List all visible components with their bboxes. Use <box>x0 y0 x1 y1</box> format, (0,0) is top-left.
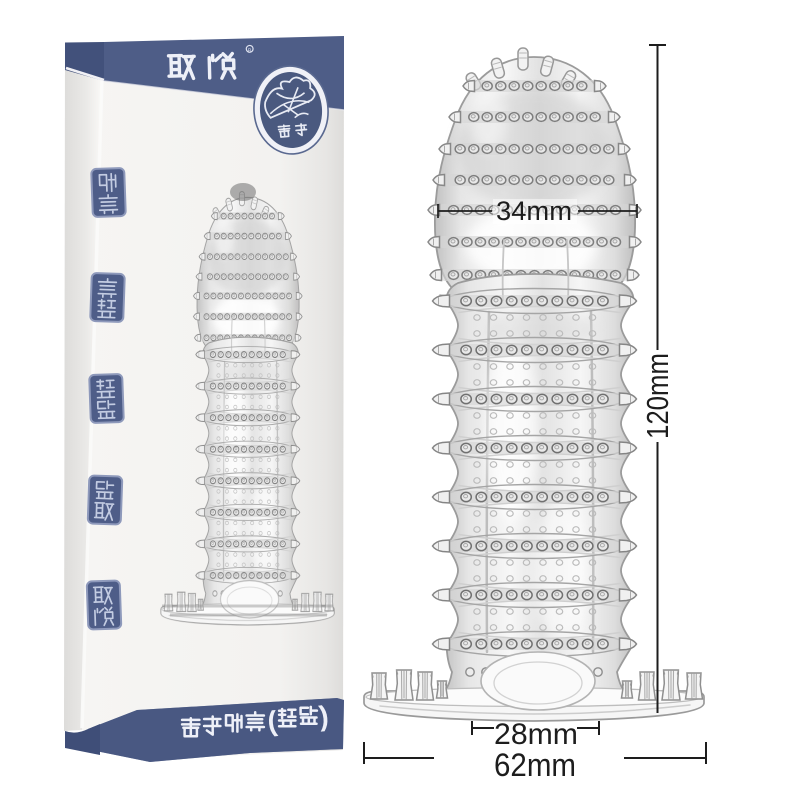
svg-text:120mm: 120mm <box>640 353 675 439</box>
svg-text:62mm: 62mm <box>494 747 576 783</box>
svg-text:34mm: 34mm <box>496 196 572 226</box>
svg-text:R: R <box>248 48 252 54</box>
